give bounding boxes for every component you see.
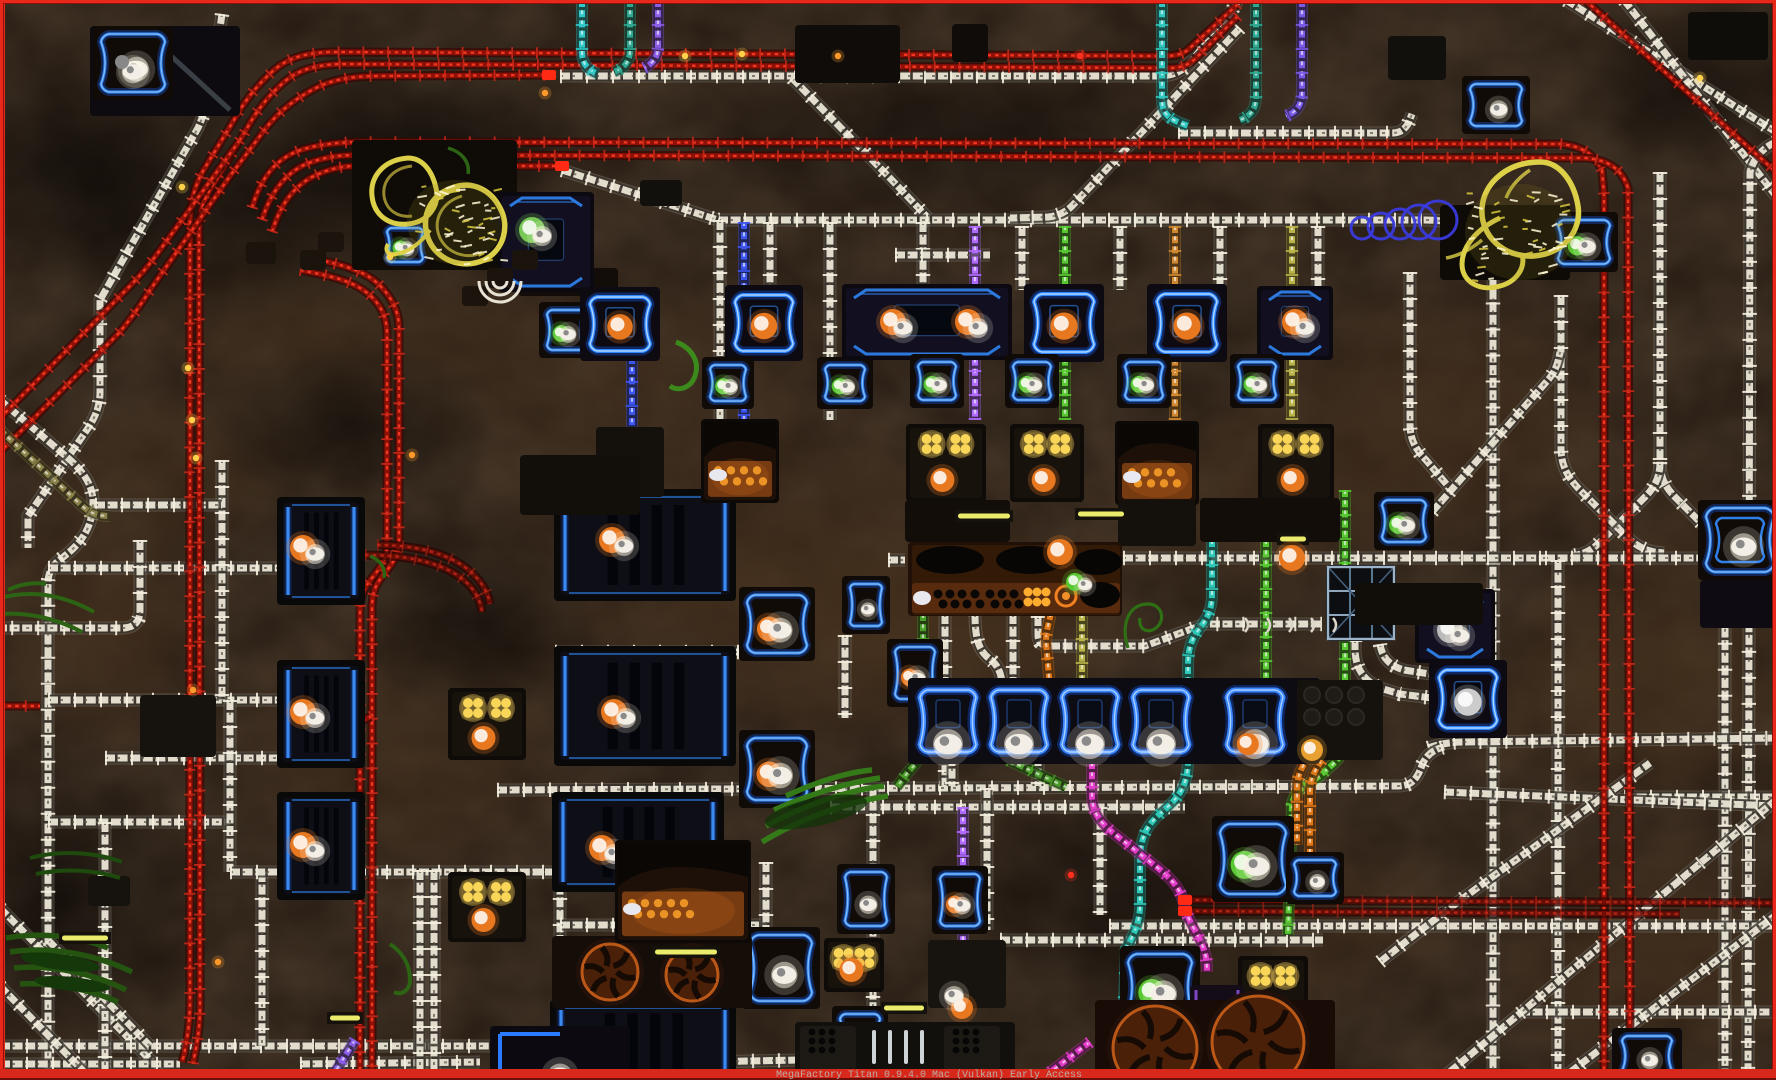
svg-text:MegaFactory Titan 0.9.4.0 Mac: MegaFactory Titan 0.9.4.0 Mac (Vulkan) E… [776, 1069, 1082, 1080]
